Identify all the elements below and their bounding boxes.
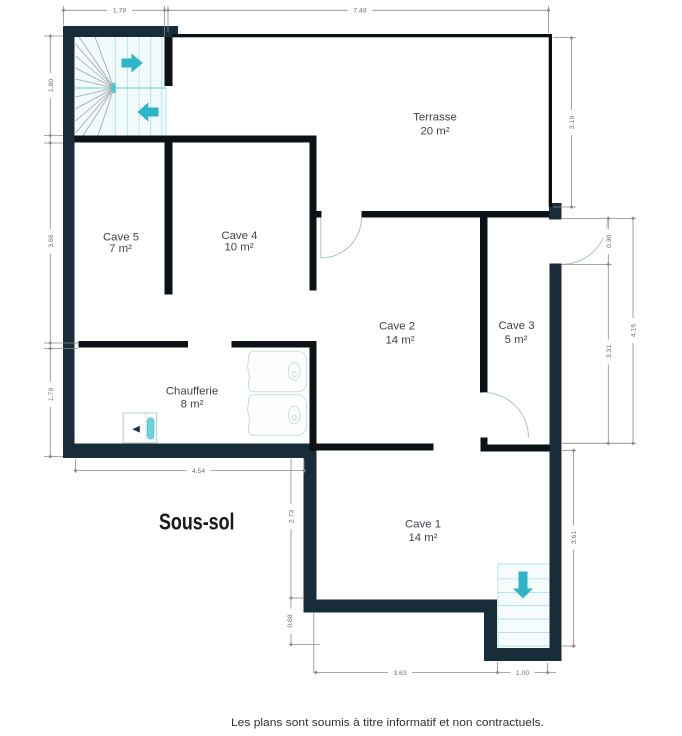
svg-text:4.16: 4.16 [631,324,638,337]
svg-text:7 m²: 7 m² [109,243,132,255]
svg-text:7.48: 7.48 [353,8,366,15]
svg-text:1.78: 1.78 [113,8,126,15]
svg-text:1.79: 1.79 [48,388,55,401]
svg-text:0.88: 0.88 [287,614,294,627]
svg-text:14 m²: 14 m² [385,335,414,347]
svg-text:14 m²: 14 m² [408,532,437,544]
svg-text:8 m²: 8 m² [181,399,204,411]
svg-text:20 m²: 20 m² [420,126,449,138]
svg-text:Chaufferie: Chaufferie [166,386,218,398]
svg-text:Cave 2: Cave 2 [379,321,415,333]
svg-text:3.66: 3.66 [48,234,55,247]
svg-text:1.00: 1.00 [516,670,529,677]
svg-text:Cave 3: Cave 3 [498,320,534,332]
svg-text:3.19: 3.19 [569,116,576,129]
svg-text:3.61: 3.61 [571,531,578,544]
svg-text:1.80: 1.80 [48,79,55,92]
svg-text:5 m²: 5 m² [505,334,528,346]
svg-text:Cave 5: Cave 5 [103,232,139,244]
svg-text:3.31: 3.31 [606,345,613,358]
svg-text:Cave 4: Cave 4 [221,230,257,242]
svg-text:Cave 1: Cave 1 [405,519,441,531]
svg-text:10 m²: 10 m² [224,242,253,254]
svg-text:Terrasse: Terrasse [413,111,457,123]
svg-text:0.90: 0.90 [606,234,613,247]
svg-text:3.63: 3.63 [393,670,406,677]
svg-text:Les plans sont soumis à titre: Les plans sont soumis à titre informatif… [231,717,544,729]
svg-text:2.73: 2.73 [289,510,296,523]
svg-text:4.54: 4.54 [192,468,205,475]
svg-text:Sous-sol: Sous-sol [159,509,235,535]
